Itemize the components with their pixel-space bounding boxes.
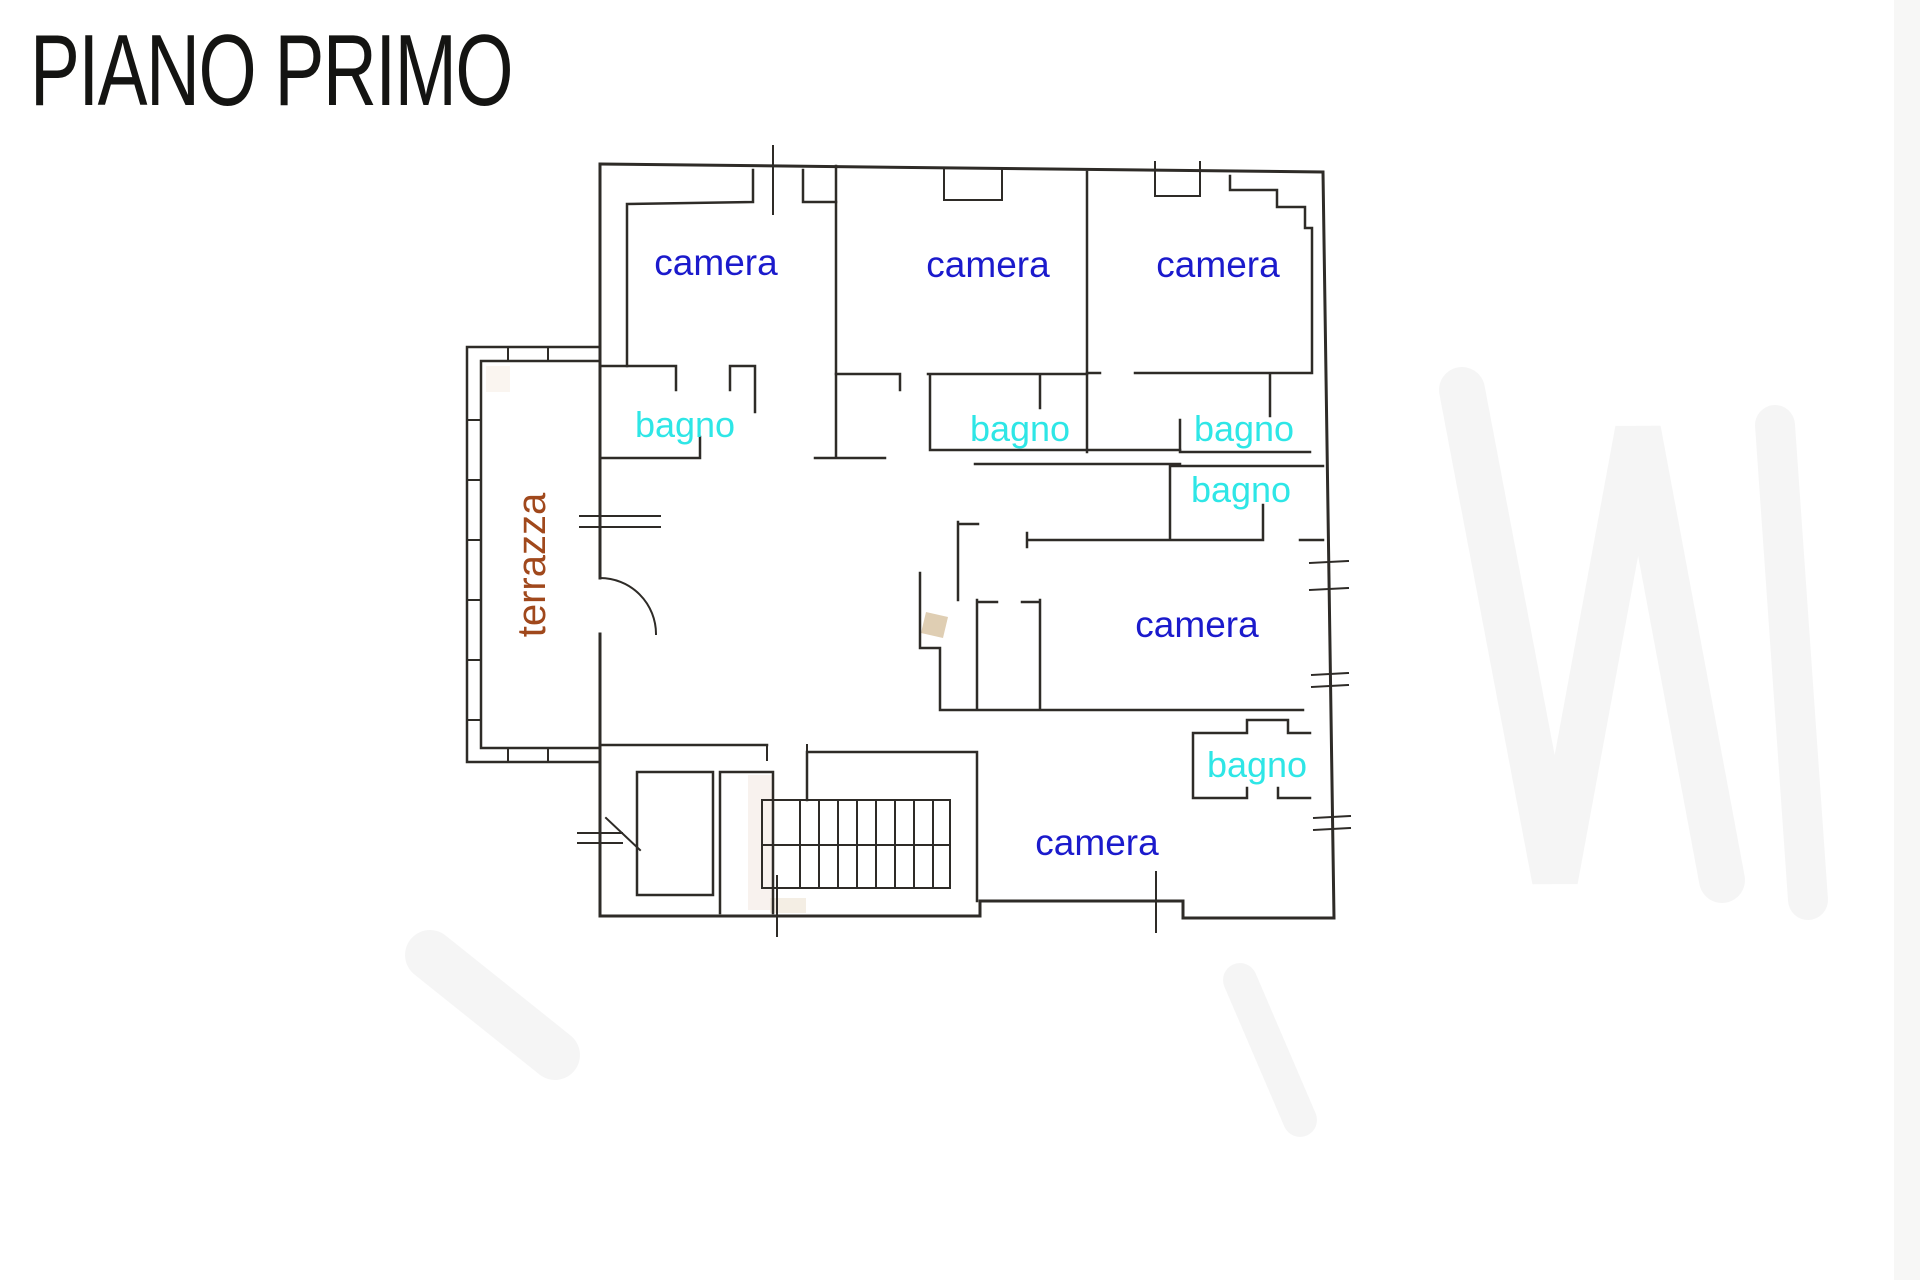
room-label-bagno-3: bagno xyxy=(1194,408,1294,449)
room-label-camera-5: camera xyxy=(1035,822,1159,863)
room-label-camera-4: camera xyxy=(1135,604,1259,645)
room-label-bagno-2: bagno xyxy=(970,408,1070,449)
room-label-bagno-1: bagno xyxy=(635,404,735,445)
room-label-camera-3: camera xyxy=(1156,244,1280,285)
room-label-camera-1: camera xyxy=(654,242,778,283)
room-label-camera-2: camera xyxy=(926,244,1050,285)
room-labels: camera camera camera camera camera bagno… xyxy=(510,242,1307,863)
floor-plan-drawing: camera camera camera camera camera bagno… xyxy=(0,0,1920,1280)
door-arcs xyxy=(600,578,656,850)
shaded-patches xyxy=(486,366,948,913)
room-label-bagno-5: bagno xyxy=(1207,744,1307,785)
room-label-terrazza: terrazza xyxy=(510,492,554,637)
staircase xyxy=(762,752,977,901)
room-label-bagno-4: bagno xyxy=(1191,469,1291,510)
floor-plan-page: PIANO PRIMO xyxy=(0,0,1920,1280)
